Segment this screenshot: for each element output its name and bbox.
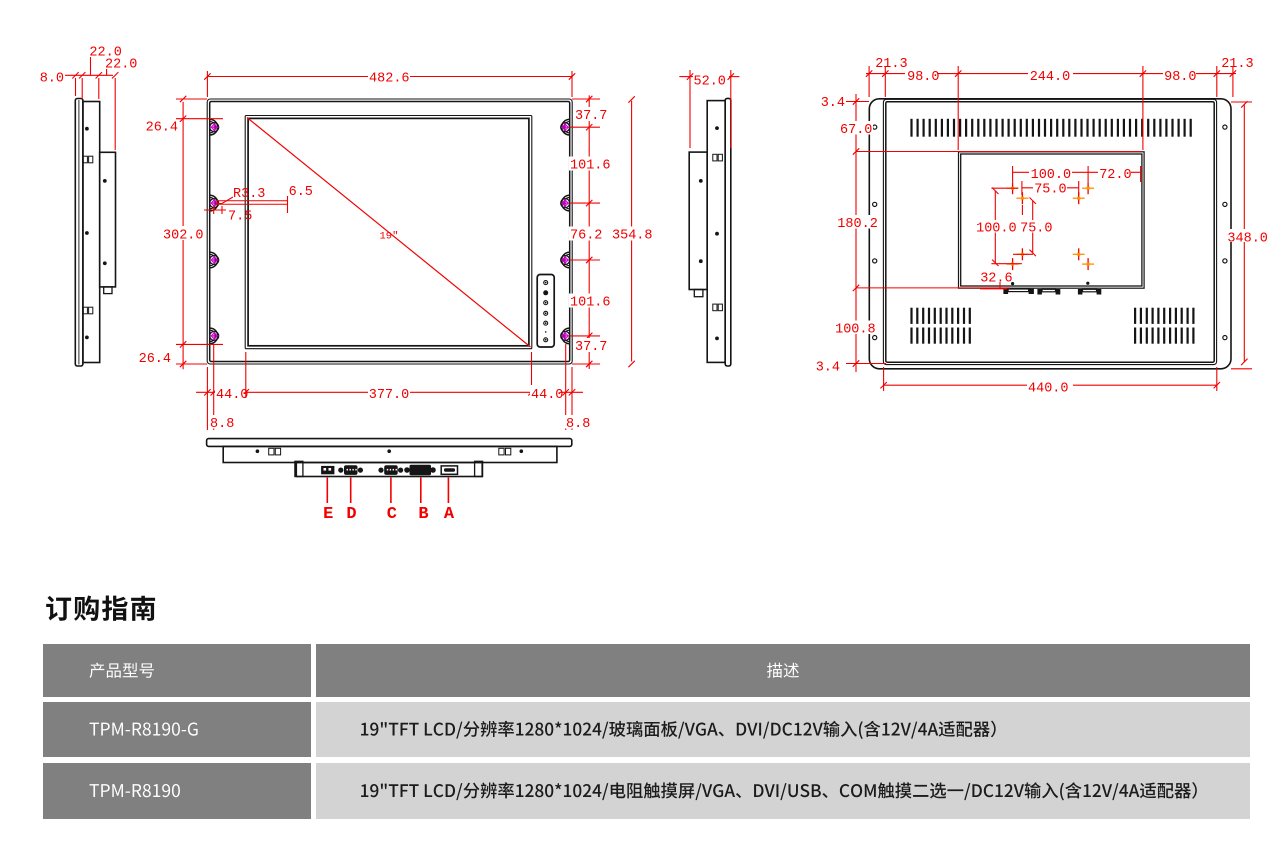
svg-text:C: C [387,505,397,524]
svg-text:8.8: 8.8 [210,417,234,432]
svg-text:37.7: 37.7 [575,340,607,355]
svg-text:44.0: 44.0 [531,388,563,403]
svg-text:21.3: 21.3 [875,57,907,72]
svg-text:52.0: 52.0 [694,74,726,89]
svg-text:72.0: 72.0 [1099,168,1131,183]
svg-text:B: B [418,505,428,524]
svg-text:26.4: 26.4 [139,352,171,367]
svg-text:26.4: 26.4 [146,120,178,135]
svg-text:37.7: 37.7 [575,109,607,124]
svg-text:101.6: 101.6 [570,159,611,174]
svg-text:377.0: 377.0 [369,388,410,403]
svg-text:A: A [444,505,455,524]
svg-text:482.6: 482.6 [369,72,410,87]
svg-text:R3.3: R3.3 [233,187,265,202]
svg-text:101.6: 101.6 [570,295,611,310]
svg-text:75.0: 75.0 [1020,221,1052,236]
svg-text:98.0: 98.0 [907,70,939,85]
svg-text:19": 19" [380,231,399,243]
svg-text:354.8: 354.8 [612,229,653,244]
svg-text:67.0: 67.0 [840,123,872,138]
svg-text:100.0: 100.0 [976,221,1017,236]
svg-text:180.2: 180.2 [837,217,878,232]
svg-text:244.0: 244.0 [1030,70,1071,85]
svg-text:21.3: 21.3 [1221,57,1253,72]
svg-text:32.6: 32.6 [980,272,1012,287]
svg-text:3.4: 3.4 [816,361,840,376]
svg-text:D: D [346,505,356,524]
svg-text:440.0: 440.0 [1028,382,1069,397]
svg-text:75.0: 75.0 [1034,182,1066,197]
svg-text:76.2: 76.2 [570,229,602,244]
svg-text:100.8: 100.8 [835,323,876,338]
svg-text:302.0: 302.0 [163,228,204,243]
svg-text:8.8: 8.8 [566,417,590,432]
svg-text:44.0: 44.0 [216,388,248,403]
svg-text:7.5: 7.5 [228,210,252,225]
svg-text:22.0: 22.0 [105,57,137,72]
svg-text:8.0: 8.0 [40,72,64,87]
svg-text:6.5: 6.5 [289,185,313,200]
svg-text:E: E [323,505,333,524]
svg-text:348.0: 348.0 [1227,232,1268,247]
svg-text:98.0: 98.0 [1164,70,1196,85]
svg-text:3.4: 3.4 [821,96,845,111]
svg-text:100.0: 100.0 [1031,168,1072,183]
